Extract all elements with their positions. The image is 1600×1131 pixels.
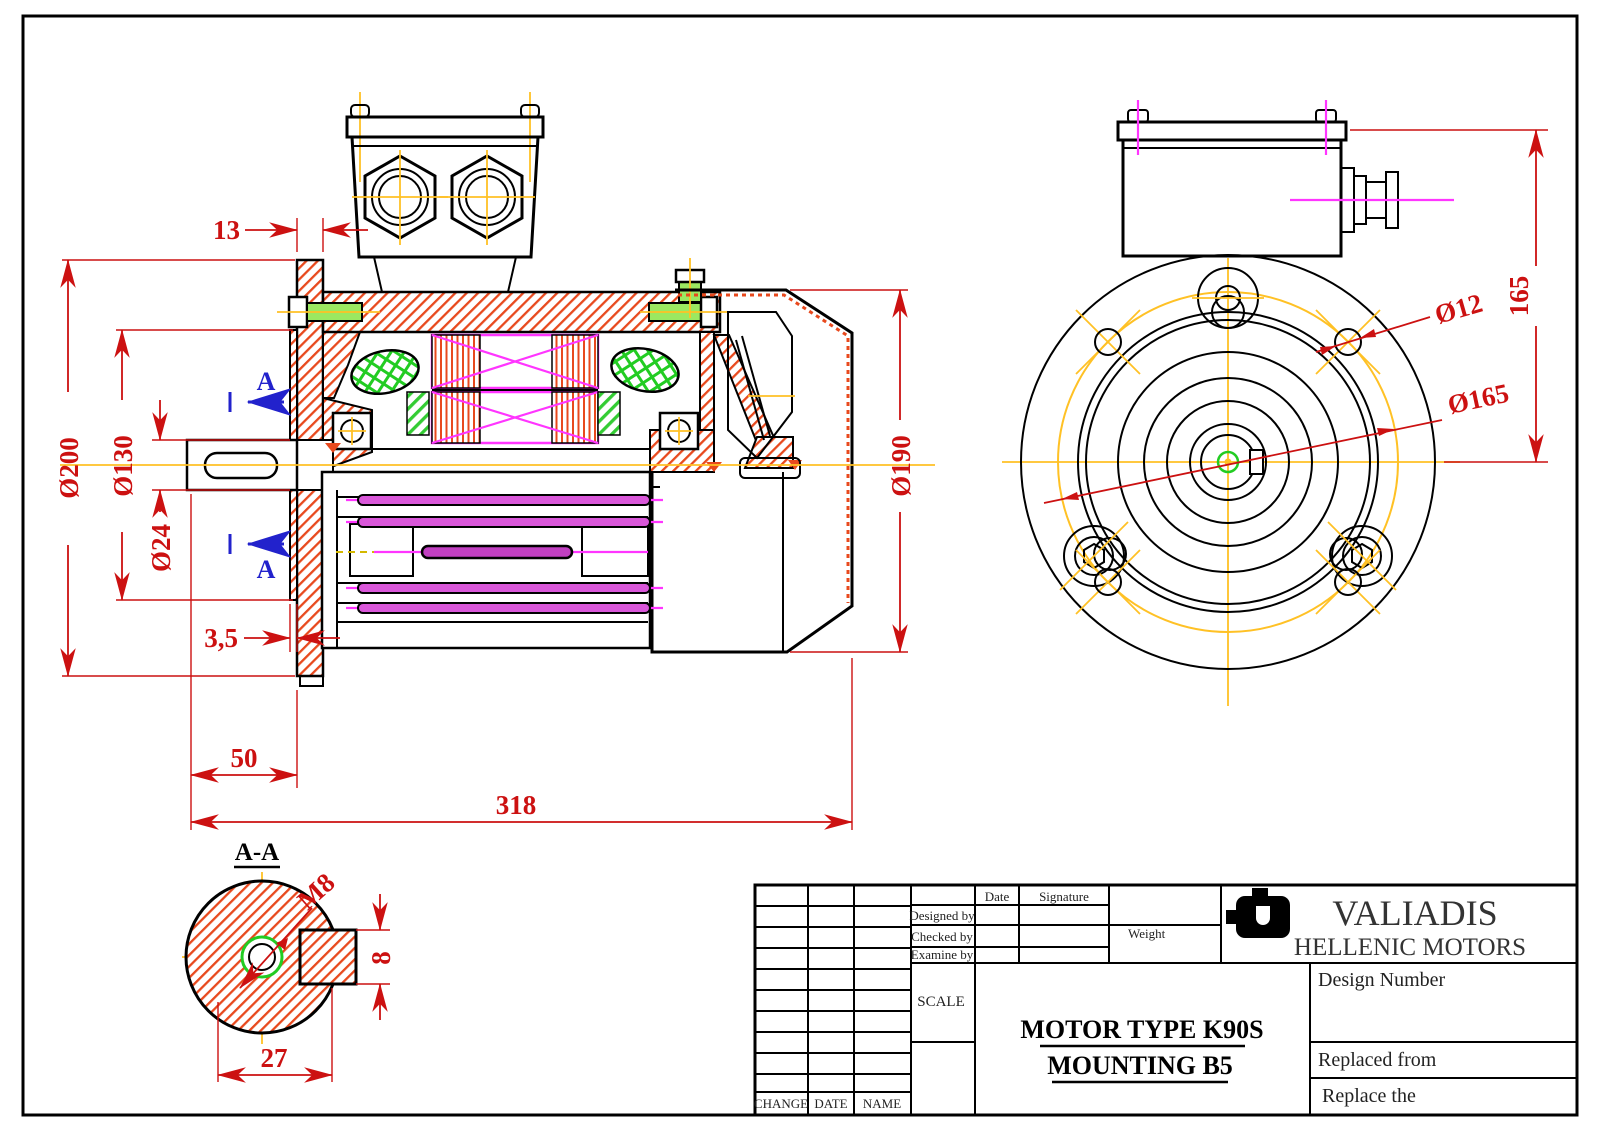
key-section	[300, 930, 356, 984]
dim-d24: Ø24	[146, 524, 176, 572]
bearing-left	[325, 413, 371, 453]
mounting-type: MOUNTING B5	[1047, 1051, 1233, 1080]
motor-body-fins	[322, 472, 663, 648]
dim-50: 50	[231, 743, 258, 773]
section-letter: A	[257, 367, 276, 396]
revision-col-change: CHANGE	[754, 1096, 808, 1111]
engineering-drawing: A A 13 Ø200 Ø130	[0, 0, 1600, 1131]
dim-d190: Ø190	[886, 435, 916, 497]
label-scale: SCALE	[917, 994, 965, 1010]
label-replace-the: Replace the	[1322, 1085, 1416, 1107]
bearing-right	[660, 413, 698, 449]
title-block: CHANGE DATE NAME Date Signature Designed…	[754, 885, 1577, 1115]
revision-col-name: NAME	[863, 1096, 901, 1111]
section-title: A-A	[235, 839, 279, 866]
drawing-sheet: A A 13 Ø200 Ø130	[0, 0, 1600, 1131]
keyway-front	[1250, 450, 1263, 474]
dim-165: 165	[1504, 276, 1534, 317]
dim-8: 8	[366, 951, 396, 965]
dim-d130: Ø130	[108, 435, 138, 497]
slot-insulation	[407, 392, 429, 435]
label-date: Date	[985, 889, 1010, 904]
slot-insulation	[598, 392, 620, 435]
label-examine-by: Examine by	[911, 947, 974, 962]
dim-d200: Ø200	[54, 437, 84, 499]
label-designed-by: Designed by	[909, 908, 975, 923]
brand-subtitle: HELLENIC MOTORS	[1294, 934, 1526, 961]
tap-hole	[249, 944, 275, 970]
revision-col-date: DATE	[814, 1096, 847, 1111]
label-replaced-from: Replaced from	[1318, 1049, 1437, 1071]
dim-318: 318	[496, 790, 537, 820]
dim-27: 27	[261, 1043, 288, 1073]
section-letter: A	[257, 555, 276, 584]
dim-3-5: 3,5	[204, 623, 238, 653]
motor-type: MOTOR TYPE K90S	[1020, 1015, 1263, 1044]
dim-13: 13	[213, 215, 240, 245]
stator-rotor-core	[432, 335, 598, 443]
label-signature: Signature	[1039, 889, 1089, 904]
label-weight: Weight	[1128, 926, 1166, 941]
brand-name: VALIADIS	[1332, 893, 1497, 933]
label-checked-by: Checked by	[911, 929, 973, 944]
label-design-number: Design Number	[1318, 969, 1446, 991]
